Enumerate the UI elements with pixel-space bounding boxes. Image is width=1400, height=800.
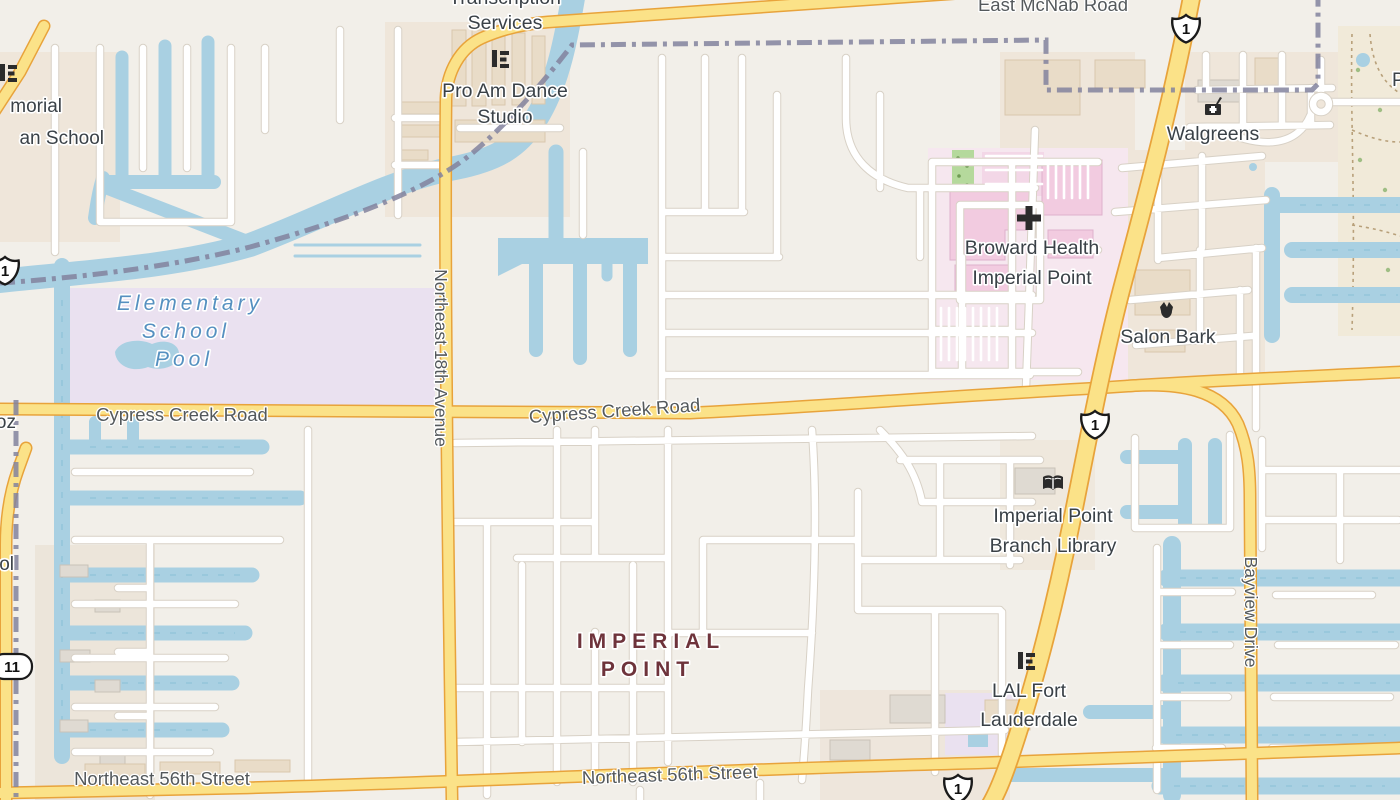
- book-icon[interactable]: [1043, 475, 1063, 490]
- sr811-shield-partial: 11: [0, 654, 32, 679]
- road-label-ne-18th-ave: Northeast 18th Avenue: [431, 269, 451, 447]
- storefront-icon[interactable]: [0, 64, 17, 82]
- us1-shield-number: 1: [954, 781, 962, 798]
- poi-label-partial-p: P: [1392, 70, 1400, 91]
- poi-label-transcription-line2: Services: [468, 12, 543, 34]
- us1-shield-number: 1: [1, 263, 9, 280]
- poi-label-lal-line2: Lauderdale: [980, 709, 1078, 731]
- water-label-school-pool-line2: School: [142, 320, 230, 343]
- poi-label-pro-am-line2: Studio: [477, 106, 532, 128]
- storefront-icon[interactable]: [1018, 652, 1035, 670]
- water-label-school-pool-line1: Elementary: [117, 292, 263, 315]
- road-label-cypress-creek-center: Cypress Creek Road: [528, 394, 701, 427]
- storefront-icon[interactable]: [492, 50, 509, 68]
- poi-label-memorial-line1: morial: [10, 96, 62, 117]
- us1-shield-number: 1: [1182, 21, 1190, 38]
- poi-label-walgreens: Walgreens: [1167, 123, 1260, 145]
- road-label-east-mcnab: East McNab Road: [978, 0, 1128, 15]
- poi-label-broward-line1: Broward Health: [965, 237, 1099, 259]
- poi-label-broward-line2: Imperial Point: [972, 267, 1092, 289]
- water-label-school-pool-line3: Pool: [155, 348, 213, 371]
- road-label-ne-56th-west: Northeast 56th Street: [74, 768, 250, 789]
- poi-label-memorial-line2: an School: [19, 128, 104, 149]
- neighborhood-label-line1: IMPERIAL: [577, 630, 725, 653]
- poi-label-partial-oz: oz: [0, 412, 16, 433]
- poi-label-partial-ol: ol: [0, 554, 14, 575]
- poi-label-lal-line1: LAL Fort: [992, 680, 1067, 702]
- poi-label-transcription-line1: Transcription: [449, 0, 561, 9]
- poi-label-library-line2: Branch Library: [990, 535, 1117, 557]
- road-label-cypress-creek-west: Cypress Creek Road: [96, 404, 268, 425]
- sr811-shield-number: 11: [4, 659, 20, 676]
- poi-label-salon-bark: Salon Bark: [1120, 326, 1216, 348]
- poi-label-pro-am-line1: Pro Am Dance: [442, 80, 568, 102]
- road-label-ne-56th-center: Northeast 56th Street: [582, 761, 758, 788]
- map-canvas[interactable]: 1 1 1 1 11 Transcription Services Pro Am…: [0, 0, 1400, 800]
- us1-shield: 1: [944, 775, 972, 800]
- map-tile-layer: 1 1 1 1 11 Transcription Services Pro Am…: [0, 0, 1400, 800]
- road-label-bayview-drive: Bayview Drive: [1241, 557, 1261, 668]
- neighborhood-label-line2: POINT: [601, 658, 695, 681]
- us1-shield-number: 1: [1091, 417, 1099, 434]
- poi-label-library-line1: Imperial Point: [993, 505, 1113, 527]
